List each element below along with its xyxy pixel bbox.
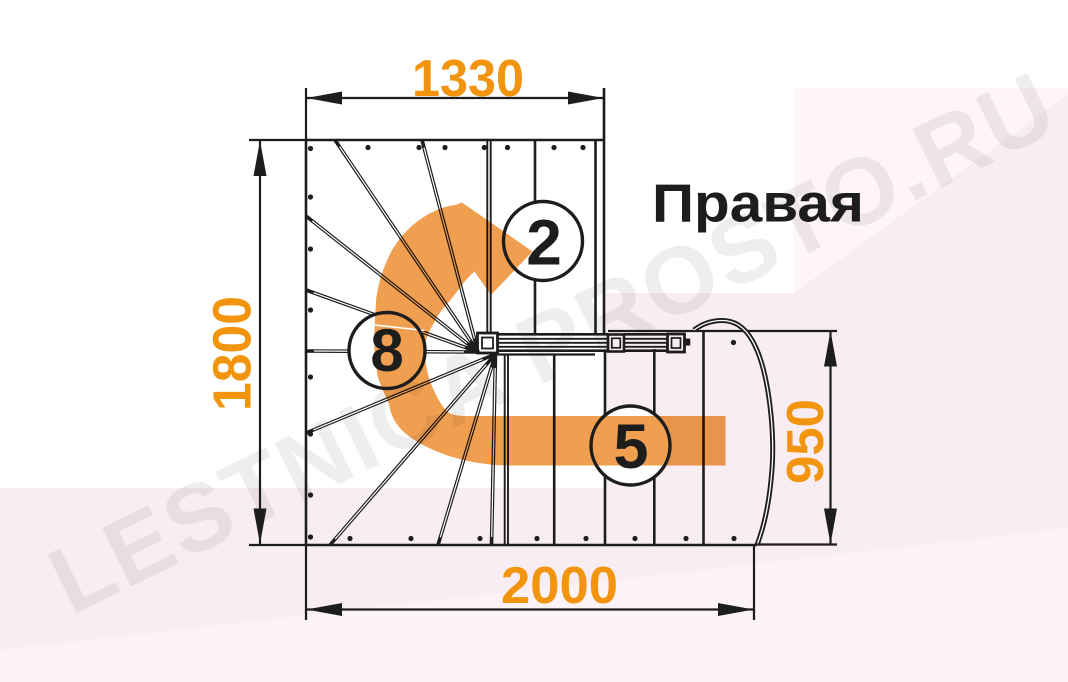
svg-text:1800: 1800 — [203, 296, 263, 411]
svg-text:5: 5 — [613, 412, 648, 482]
svg-text:2: 2 — [526, 207, 562, 279]
svg-text:Правая: Правая — [652, 174, 864, 234]
svg-text:2000: 2000 — [501, 557, 618, 615]
svg-text:950: 950 — [777, 399, 835, 484]
svg-text:1330: 1330 — [412, 50, 524, 108]
svg-text:8: 8 — [370, 317, 403, 384]
